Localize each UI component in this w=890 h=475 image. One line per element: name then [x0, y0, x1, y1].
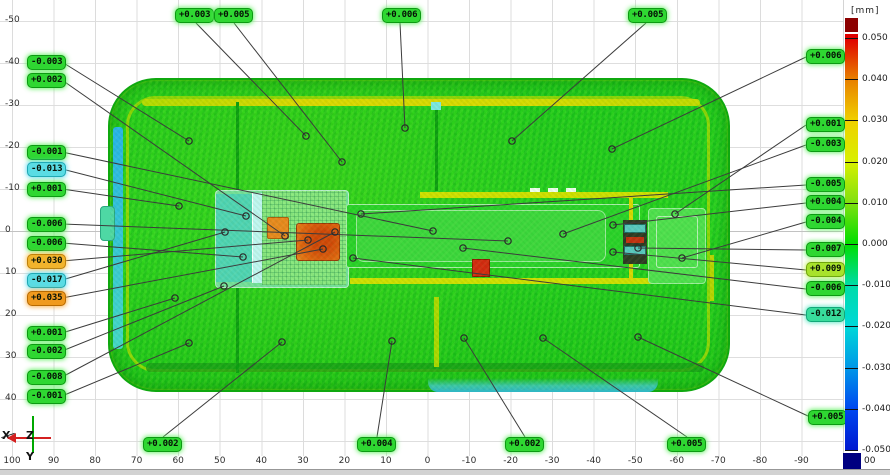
deviation-label[interactable]: -0.013	[27, 162, 66, 177]
colorbar-overflow-block	[845, 18, 858, 32]
y-axis-tick: 40	[5, 393, 33, 403]
deviation-band-top-yellow	[142, 99, 700, 106]
triad-z-label: Z	[26, 429, 34, 442]
colorbar-tick	[845, 244, 858, 245]
deviation-label[interactable]: +0.003	[175, 8, 214, 23]
seam-top-left	[236, 102, 239, 192]
deviation-label[interactable]: +0.006	[806, 49, 845, 64]
colorbar-unit-label: [mm]	[851, 6, 880, 16]
y-axis-tick: -20	[5, 141, 33, 151]
deviation-hotspot-red	[472, 259, 490, 277]
deviation-hotspot-orange-small	[267, 217, 289, 239]
deviation-label[interactable]: -0.005	[806, 177, 845, 192]
colorbar-underflow-label: 00	[864, 456, 875, 466]
module-teal-zone	[216, 194, 253, 282]
scanned-part-deviation-map[interactable]	[108, 78, 730, 392]
x-axis-tick: 50	[205, 456, 235, 466]
colorbar-tick-label: -0.040	[862, 404, 890, 414]
window-bottom-strip	[0, 469, 890, 475]
color-scale-bar[interactable]	[845, 34, 858, 450]
x-axis-tick: 0	[413, 456, 443, 466]
x-axis-tick: 10	[371, 456, 401, 466]
y-axis-tick: -10	[5, 183, 33, 193]
x-axis-tick: 80	[80, 456, 110, 466]
x-axis-tick: 70	[122, 456, 152, 466]
deviation-label[interactable]: -0.006	[806, 281, 845, 296]
edge-highlight-dash	[530, 188, 540, 192]
x-axis-tick: 60	[163, 456, 193, 466]
y-axis-tick: -40	[5, 57, 33, 67]
colorbar-tick-label: 0.010	[862, 198, 890, 208]
deviation-label[interactable]: -0.003	[806, 137, 845, 152]
module-right-inner-contour	[656, 216, 698, 268]
x-axis-tick: -70	[703, 456, 733, 466]
deviation-label[interactable]: +0.004	[806, 195, 845, 210]
colorbar-tick	[845, 326, 858, 327]
colorbar-tick	[845, 409, 858, 410]
y-axis-tick: 20	[5, 309, 33, 319]
x-axis-tick: -90	[786, 456, 816, 466]
part-left-tab	[100, 206, 115, 241]
deviation-label[interactable]: +0.035	[27, 291, 66, 306]
deviation-label[interactable]: -0.012	[806, 307, 845, 322]
deviation-label[interactable]: +0.005	[667, 437, 706, 452]
deviation-strip-yellow-bottom	[350, 278, 670, 284]
y-axis-tick: 10	[5, 267, 33, 277]
deviation-label[interactable]: +0.002	[27, 73, 66, 88]
colorbar-tick	[845, 162, 858, 163]
connector-pad	[624, 246, 646, 255]
deviation-label[interactable]: +0.005	[808, 410, 847, 425]
colorbar-tick-label: 0.030	[862, 115, 890, 125]
deviation-label[interactable]: -0.007	[806, 242, 845, 257]
deviation-label[interactable]: +0.009	[806, 262, 845, 277]
colorbar-tick	[845, 203, 858, 204]
x-axis-tick: 30	[288, 456, 318, 466]
deviation-label[interactable]: -0.006	[27, 236, 66, 251]
y-axis-tick: 0	[5, 225, 33, 235]
edge-highlight-dash	[566, 188, 576, 192]
x-axis-tick: 90	[39, 456, 69, 466]
y-axis-tick: -50	[5, 15, 33, 25]
colorbar-tick-label: 0.040	[862, 74, 890, 84]
colorbar-tick	[845, 368, 858, 369]
deviation-label[interactable]: +0.002	[505, 437, 544, 452]
seam-bottom-middle	[434, 297, 439, 367]
x-axis-tick: -40	[579, 456, 609, 466]
deviation-label[interactable]: +0.001	[27, 326, 66, 341]
colorbar-tick	[845, 450, 858, 451]
plot-right-edge	[843, 0, 844, 456]
deviation-label[interactable]: +0.005	[214, 8, 253, 23]
x-axis-tick: -80	[745, 456, 775, 466]
colorbar-tick-label: 0.020	[862, 157, 890, 167]
deviation-strip-bottom-teal	[428, 378, 658, 392]
part-bottom-seam-band	[146, 363, 704, 372]
x-axis-tick: 40	[246, 456, 276, 466]
colorbar-tick	[845, 38, 858, 39]
connector-red-mark	[626, 237, 644, 243]
x-axis-tick: -60	[662, 456, 692, 466]
x-axis-tick: 100	[0, 456, 27, 466]
colorbar-tick	[845, 79, 858, 80]
y-axis-tick: -30	[5, 99, 33, 109]
x-axis-tick: -50	[620, 456, 650, 466]
deviation-label[interactable]: +0.001	[806, 117, 845, 132]
colorbar-tick-label: -0.010	[862, 280, 890, 290]
deviation-label[interactable]: -0.008	[27, 370, 66, 385]
deviation-label[interactable]: +0.006	[382, 8, 421, 23]
deviation-label[interactable]: -0.004	[806, 214, 845, 229]
x-axis-tick: -20	[496, 456, 526, 466]
module-cyan-column	[252, 193, 262, 283]
deviation-label[interactable]: +0.004	[357, 437, 396, 452]
colorbar-tick-label: 0.050	[862, 33, 890, 43]
colorbar-tick-label: -0.050	[862, 445, 890, 455]
deviation-label[interactable]: +0.002	[143, 437, 182, 452]
colorbar-tick	[845, 120, 858, 121]
measurement-viewport[interactable]: +0.003+0.005+0.006+0.005+0.006+0.001-0.0…	[0, 0, 890, 475]
connector-pad	[624, 224, 646, 233]
seam-top-middle-cap	[431, 102, 441, 110]
center-channel-inner	[356, 210, 606, 262]
edge-highlight-dash	[548, 188, 558, 192]
seam-bottom-left	[236, 285, 239, 373]
colorbar-tick	[845, 285, 858, 286]
triad-y-label: Y	[26, 450, 34, 463]
seam-top-middle	[435, 105, 438, 191]
colorbar-tick-label: -0.020	[862, 321, 890, 331]
colorbar-tick-label: 0.000	[862, 239, 890, 249]
x-axis-tick: -30	[537, 456, 567, 466]
seam-right-yellowgreen	[710, 255, 714, 301]
x-axis-tick: 20	[329, 456, 359, 466]
y-axis-tick: 30	[5, 351, 33, 361]
x-axis-tick: -10	[454, 456, 484, 466]
colorbar-tick-label: -0.030	[862, 363, 890, 373]
deviation-label[interactable]: +0.005	[628, 8, 667, 23]
deviation-hotspot-orange-large	[296, 223, 340, 261]
